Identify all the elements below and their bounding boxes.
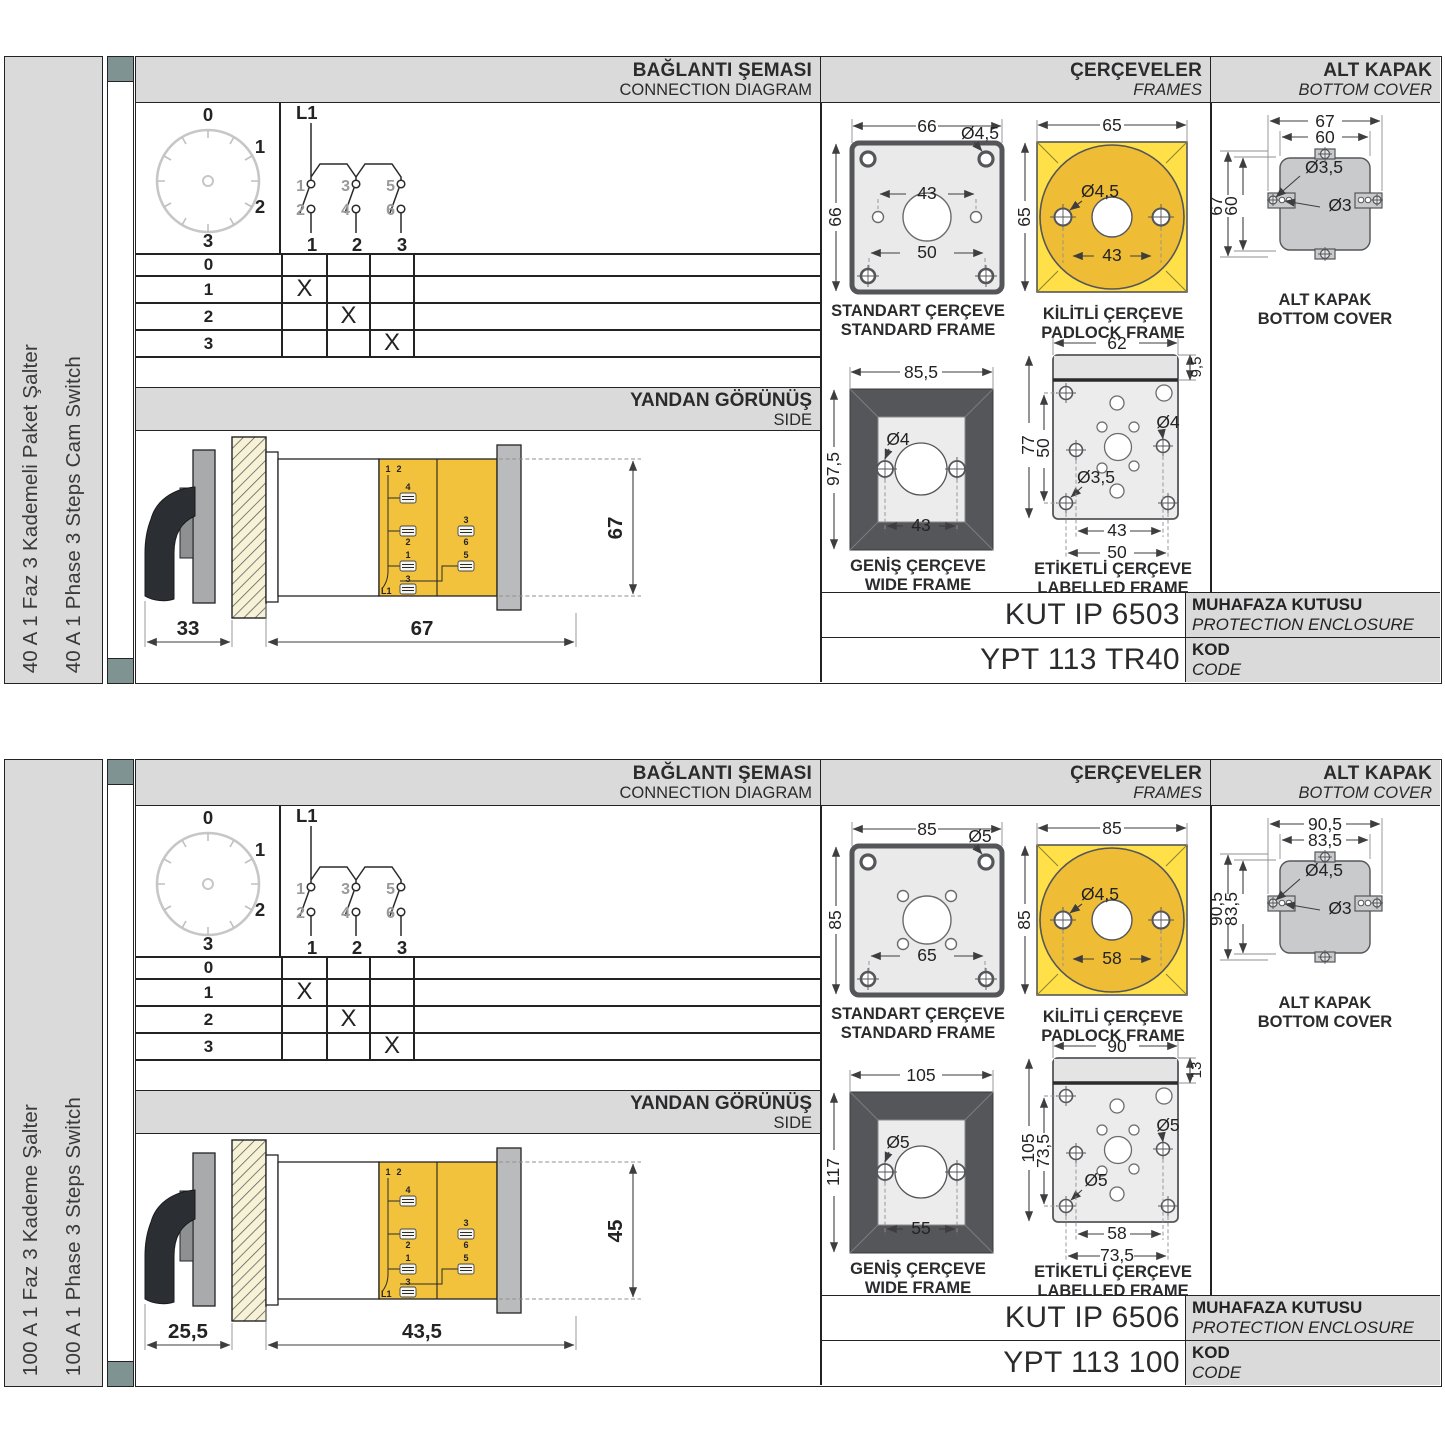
bottom-cover-header: ALT KAPAK BOTTOM COVER	[1210, 57, 1440, 103]
enclosure-label-tr: MUHAFAZA KUTUSU	[1192, 595, 1440, 615]
caption-tr: GENİŞ ÇERÇEVE	[820, 557, 1016, 576]
dim-body-height: 45	[604, 1220, 627, 1243]
binder-strip	[107, 56, 134, 684]
caption-tr: ETİKETLİ ÇERÇEVE	[1016, 1263, 1210, 1282]
cell	[369, 980, 413, 1005]
dim-frame-height: 117	[823, 1158, 843, 1186]
dim-hole-spacing: 58	[1102, 948, 1121, 968]
terminal-label: 2	[405, 1240, 410, 1250]
code-label-tr: KOD	[1192, 640, 1440, 660]
caption-tr: STANDART ÇERÇEVE	[820, 302, 1016, 321]
table-edge	[413, 277, 415, 302]
cell	[281, 1007, 326, 1032]
pole-1: 1	[307, 937, 317, 958]
terminal-label: 3	[463, 1218, 468, 1228]
table-row: 1 X	[136, 980, 820, 1007]
wide-frame-caption: GENİŞ ÇERÇEVE WIDE FRAME	[820, 557, 1016, 595]
dim-cover-h2: 83,5	[1221, 892, 1241, 926]
terminal-label: 1	[385, 464, 390, 474]
bottom-cover-header-tr: ALT KAPAK	[1211, 60, 1432, 81]
switch-body	[278, 459, 379, 596]
dim-frame-height: 97,5	[823, 452, 843, 486]
dial-diagram: 0 1 2 3	[136, 806, 281, 956]
cell	[281, 255, 326, 275]
cell	[369, 958, 413, 978]
enclosure-code-row: KUT IP 6503 MUHAFAZA KUTUSU PROTECTION E…	[820, 592, 1440, 637]
datasheet-40a: 40 A 1 Faz 3 Kademeli Paket Şalter 40 A …	[4, 56, 1442, 684]
dim-hole-big: Ø5	[1156, 1115, 1179, 1135]
contact-4: 4	[341, 905, 350, 922]
pole-2: 2	[352, 937, 362, 958]
product-title-en: 100 A 1 Phase 3 Steps Switch	[62, 1097, 86, 1376]
cell	[326, 1034, 369, 1059]
contact-4: 4	[341, 202, 350, 219]
frames-header-en: FRAMES	[821, 784, 1202, 803]
product-code-row: YPT 113 TR40 KOD CODE	[820, 637, 1440, 682]
cell: X	[326, 304, 369, 329]
labelled-frame-drawing: 62 9,5 77 50 Ø4 Ø3,5 43 50	[1016, 335, 1221, 570]
enclosure-label-en: PROTECTION ENCLOSURE	[1192, 615, 1440, 634]
table-row: 0	[136, 958, 820, 980]
dim-front-depth: 25,5	[168, 1320, 208, 1343]
mounting-plate	[193, 1153, 215, 1306]
padlock-frame-drawing: 65 Ø4,5 43 65	[1020, 105, 1212, 300]
cell	[369, 277, 413, 302]
flange	[266, 452, 278, 602]
dim-hole-spacing: 43	[917, 183, 936, 203]
contact-5: 5	[386, 178, 395, 195]
cell: X	[369, 1034, 413, 1059]
terminal-label: 4	[405, 1185, 410, 1195]
frames-header-en: FRAMES	[821, 81, 1202, 100]
dim-inner-height: 50	[1033, 438, 1053, 458]
terminal-label: 2	[405, 537, 410, 547]
connection-diagram-header: BAĞLANTI ŞEMASI CONNECTION DIAGRAM	[136, 760, 820, 806]
dim-hole-diameter: Ø4,5	[961, 123, 999, 143]
dim-inner-height: 73,5	[1033, 1134, 1053, 1168]
dim-frame-height: 65	[1014, 207, 1034, 226]
dial-pos-3: 3	[203, 230, 213, 251]
side-view-header: YANDAN GÖRÜNÜŞ SIDE	[136, 387, 820, 431]
caption-tr: KİLİTLİ ÇERÇEVE	[1016, 1008, 1210, 1027]
terminal-block	[379, 459, 497, 596]
product-code: YPT 113 100	[820, 1341, 1185, 1385]
product-title-tr: 40 A 1 Faz 3 Kademeli Paket Şalter	[19, 344, 43, 673]
terminal-label: 5	[463, 550, 468, 560]
standard-frame-drawing: 85 Ø5 65 85	[828, 808, 1020, 1008]
table-row: 3 X	[136, 1034, 820, 1061]
enclosure-code: KUT IP 6503	[820, 593, 1185, 637]
dim-strip-height: 13	[1188, 1062, 1205, 1079]
terminal-label: 2	[396, 1167, 401, 1177]
connection-header-tr: BAĞLANTI ŞEMASI	[136, 763, 812, 784]
binder-tab-bottom	[108, 658, 133, 683]
contact-2: 2	[296, 905, 305, 922]
circuit-diagram: L1 1 2 3 4 5 6 1 2 3	[281, 103, 820, 253]
table-row: 0	[136, 255, 820, 277]
frames-header: ÇERÇEVELER FRAMES	[820, 57, 1210, 103]
dim-frame-width: 85,5	[904, 362, 938, 382]
mounting-plate	[193, 450, 215, 603]
labelled-frame-drawing: 90 13 105 73,5 Ø5 Ø5 58 73,5	[1016, 1038, 1221, 1273]
dial-pos-0: 0	[203, 104, 213, 125]
cell	[369, 255, 413, 275]
dim-hole-small: Ø3,5	[1077, 467, 1115, 487]
cell	[281, 1034, 326, 1059]
dim-hole-small: Ø5	[1084, 1170, 1107, 1190]
row-label: 0	[136, 255, 281, 275]
terminal-label: 3	[405, 574, 410, 584]
dim-frame-width: 66	[917, 116, 936, 136]
terminal-label: 5	[463, 1253, 468, 1263]
terminal-label: 2	[396, 464, 401, 474]
pole-2: 2	[352, 234, 362, 255]
terminal-label: 3	[463, 515, 468, 525]
connection-header-en: CONNECTION DIAGRAM	[136, 784, 812, 803]
terminal-label: 1	[405, 1253, 410, 1263]
product-title-sidebar: 40 A 1 Faz 3 Kademeli Paket Şalter 40 A …	[4, 56, 103, 684]
dim-frame-height: 85	[825, 910, 845, 929]
product-title-sidebar: 100 A 1 Faz 3 Kademe Şalter 100 A 1 Phas…	[4, 759, 103, 1387]
dial-pos-1: 1	[255, 136, 265, 157]
cell	[326, 958, 369, 978]
row-label: 0	[136, 958, 281, 978]
dim-bottom-spacing-1: 58	[1107, 1223, 1126, 1243]
dim-hole-diameter: Ø5	[886, 1132, 909, 1152]
side-view-header-tr: YANDAN GÖRÜNÜŞ	[136, 1093, 812, 1114]
caption-en: BOTTOM COVER	[1210, 310, 1440, 329]
table-row: 3 X	[136, 331, 820, 358]
dial-pos-1: 1	[255, 839, 265, 860]
side-view-header: YANDAN GÖRÜNÜŞ SIDE	[136, 1090, 820, 1134]
circuit-diagram: L1 1 2 3 4 5 6 1 2 3	[281, 806, 820, 956]
dim-cover-hole2: Ø3	[1328, 195, 1351, 215]
contact-1: 1	[296, 178, 305, 195]
table-edge	[413, 980, 415, 1005]
contact-1: 1	[296, 881, 305, 898]
dial-pos-0: 0	[203, 807, 213, 828]
table-row: 1 X	[136, 277, 820, 304]
code-label-en: CODE	[1192, 1363, 1440, 1382]
cell	[369, 304, 413, 329]
bottom-cover-header-tr: ALT KAPAK	[1211, 763, 1432, 784]
dial-panel: 0 1 2 3	[136, 806, 281, 956]
dim-frame-width: 62	[1107, 333, 1126, 353]
product-title-tr: 100 A 1 Faz 3 Kademe Şalter	[19, 1104, 43, 1376]
dim-bottom-spacing-2: 73,5	[1100, 1245, 1134, 1265]
contact-5: 5	[386, 881, 395, 898]
row-label: 1	[136, 980, 281, 1005]
switch-body	[278, 1162, 379, 1299]
caption-en: STANDARD FRAME	[820, 321, 1016, 340]
caption-tr: KİLİTLİ ÇERÇEVE	[1016, 305, 1210, 324]
frames-header-tr: ÇERÇEVELER	[821, 60, 1202, 81]
panel-hatch	[232, 437, 266, 618]
frames-header: ÇERÇEVELER FRAMES	[820, 760, 1210, 806]
contact-3: 3	[341, 178, 350, 195]
product-title-en: 40 A 1 Phase 3 Steps Cam Switch	[62, 356, 86, 673]
standard-frame-caption: STANDART ÇERÇEVE STANDARD FRAME	[820, 302, 1016, 340]
row-label: 2	[136, 304, 281, 329]
binder-tab-top	[108, 57, 133, 82]
row-label: 2	[136, 1007, 281, 1032]
datasheet-100a: 100 A 1 Faz 3 Kademe Şalter 100 A 1 Phas…	[4, 759, 1442, 1387]
caption-tr: GENİŞ ÇERÇEVE	[820, 1260, 1016, 1279]
cell	[281, 304, 326, 329]
dim-cover-w2: 60	[1315, 127, 1335, 147]
terminal-label: 6	[463, 537, 468, 547]
dim-hole-diameter: Ø5	[968, 826, 991, 846]
cell	[326, 255, 369, 275]
dim-strip-height: 9,5	[1188, 357, 1205, 378]
dim-hole-spacing: 43	[1102, 245, 1121, 265]
terminal-label: L1	[381, 586, 392, 596]
terminal-block	[379, 1162, 497, 1299]
cell: X	[326, 1007, 369, 1032]
sheet-body: BAĞLANTI ŞEMASI CONNECTION DIAGRAM ÇERÇE…	[135, 56, 1442, 684]
enclosure-label-en: PROTECTION ENCLOSURE	[1192, 1318, 1440, 1337]
side-view-header-en: SIDE	[136, 1114, 812, 1133]
dim-hole-spacing: 55	[911, 1218, 930, 1238]
cell	[326, 980, 369, 1005]
row-label: 3	[136, 331, 281, 356]
dial-panel: 0 1 2 3	[136, 103, 281, 253]
dim-frame-height: 85	[1014, 910, 1034, 929]
side-view-drawing: 1 2 4 2 3 6 1 3 5 L1 25,5 43,5 45	[136, 1134, 820, 1385]
row-label: 3	[136, 1034, 281, 1059]
product-code: YPT 113 TR40	[820, 638, 1185, 682]
position-table: 0 1 X 2 X 3	[136, 956, 820, 1049]
table-edge	[413, 304, 415, 329]
dim-cover-hole1: Ø3,5	[1305, 157, 1343, 177]
code-label: KOD CODE	[1185, 638, 1440, 682]
dim-body-depth: 67	[411, 617, 434, 640]
cell: X	[369, 331, 413, 356]
dial-pos-2: 2	[255, 899, 265, 920]
caption-tr: ALT KAPAK	[1210, 994, 1440, 1013]
bottom-cover-caption: ALT KAPAK BOTTOM COVER	[1210, 994, 1440, 1032]
table-row: 2 X	[136, 1007, 820, 1034]
frames-header-tr: ÇERÇEVELER	[821, 763, 1202, 784]
dim-hole-diameter: Ø4,5	[1081, 181, 1119, 201]
binder-tab-top	[108, 760, 133, 785]
code-label: KOD CODE	[1185, 1341, 1440, 1385]
pole-3: 3	[397, 937, 407, 958]
enclosure-label: MUHAFAZA KUTUSU PROTECTION ENCLOSURE	[1185, 1296, 1440, 1340]
contact-3: 3	[341, 881, 350, 898]
cell	[326, 277, 369, 302]
side-view-header-en: SIDE	[136, 411, 812, 430]
terminal-label: 4	[405, 482, 410, 492]
bottom-cover-caption: ALT KAPAK BOTTOM COVER	[1210, 291, 1440, 329]
phase-label: L1	[296, 805, 318, 826]
dim-frame-height: 66	[825, 207, 845, 226]
connection-header-tr: BAĞLANTI ŞEMASI	[136, 60, 812, 81]
dim-cover-h2: 60	[1221, 196, 1241, 216]
caption-tr: ETİKETLİ ÇERÇEVE	[1016, 560, 1210, 579]
wide-frame-caption: GENİŞ ÇERÇEVE WIDE FRAME	[820, 1260, 1016, 1298]
cell: X	[281, 277, 326, 302]
table-edge	[413, 1007, 415, 1032]
dim-body-depth: 43,5	[402, 1320, 442, 1343]
dim-frame-width: 85	[917, 819, 936, 839]
cell	[326, 331, 369, 356]
dim-frame-width: 65	[1102, 115, 1121, 135]
dim-bottom-spacing-1: 43	[1107, 520, 1126, 540]
standard-frame-drawing: 66 Ø4,5 43 50 66	[828, 105, 1020, 305]
table-edge	[413, 255, 415, 275]
dim-front-depth: 33	[177, 617, 200, 640]
caption-tr: STANDART ÇERÇEVE	[820, 1005, 1016, 1024]
product-code-row: YPT 113 100 KOD CODE	[820, 1340, 1440, 1385]
terminal-label: L1	[381, 1289, 392, 1299]
dial-diagram: 0 1 2 3	[136, 103, 281, 253]
row-label: 1	[136, 277, 281, 302]
terminal-label: 6	[463, 1240, 468, 1250]
bottom-cover-header-en: BOTTOM COVER	[1211, 784, 1432, 803]
table-edge	[413, 958, 415, 978]
enclosure-code-row: KUT IP 6506 MUHAFAZA KUTUSU PROTECTION E…	[820, 1295, 1440, 1340]
standard-frame-caption: STANDART ÇERÇEVE STANDARD FRAME	[820, 1005, 1016, 1043]
binder-strip	[107, 759, 134, 1387]
dim-cover-hole1: Ø4,5	[1305, 860, 1343, 880]
pole-1: 1	[307, 234, 317, 255]
contact-2: 2	[296, 202, 305, 219]
dim-hole-diameter: Ø4	[886, 429, 910, 449]
cell	[281, 958, 326, 978]
phase-label: L1	[296, 102, 318, 123]
table-edge	[413, 1034, 415, 1059]
dim-frame-width: 105	[906, 1065, 935, 1085]
table-row: 2 X	[136, 304, 820, 331]
connection-header-en: CONNECTION DIAGRAM	[136, 81, 812, 100]
contact-6: 6	[386, 905, 395, 922]
dim-frame-width: 85	[1102, 818, 1121, 838]
dim-lower-spacing: 50	[917, 242, 937, 262]
bottom-cover-drawing: 67 60 67 60 Ø3,5 Ø3	[1212, 107, 1441, 287]
dim-cover-hole2: Ø3	[1328, 898, 1351, 918]
code-label-en: CODE	[1192, 660, 1440, 679]
position-table: 0 1 X 2 X 3	[136, 253, 820, 346]
dim-bottom-spacing-2: 50	[1107, 542, 1127, 562]
dim-cover-w2: 83,5	[1308, 830, 1342, 850]
end-plate	[497, 1148, 521, 1313]
cell	[369, 1007, 413, 1032]
caption-en: STANDARD FRAME	[820, 1024, 1016, 1043]
bottom-cover-header: ALT KAPAK BOTTOM COVER	[1210, 760, 1440, 806]
enclosure-label: MUHAFAZA KUTUSU PROTECTION ENCLOSURE	[1185, 593, 1440, 637]
pole-3: 3	[397, 234, 407, 255]
contact-6: 6	[386, 202, 395, 219]
caption-tr: ALT KAPAK	[1210, 291, 1440, 310]
flange	[266, 1155, 278, 1305]
panel-hatch	[232, 1140, 266, 1321]
enclosure-code: KUT IP 6506	[820, 1296, 1185, 1340]
bottom-cover-drawing: 90,5 83,5 90,5 83,5 Ø4,5 Ø3	[1212, 810, 1441, 990]
dim-body-height: 67	[604, 517, 627, 540]
dial-pos-2: 2	[255, 196, 265, 217]
caption-en: BOTTOM COVER	[1210, 1013, 1440, 1032]
padlock-frame-drawing: 85 Ø4,5 58 85	[1020, 808, 1212, 1003]
dim-hole-diameter: Ø4,5	[1081, 884, 1119, 904]
cell	[281, 331, 326, 356]
dim-hole-spacing: 43	[911, 515, 930, 535]
dim-frame-width: 90	[1107, 1036, 1127, 1056]
sheet-body: BAĞLANTI ŞEMASI CONNECTION DIAGRAM ÇERÇE…	[135, 759, 1442, 1387]
dial-pos-3: 3	[203, 933, 213, 954]
side-view-header-tr: YANDAN GÖRÜNÜŞ	[136, 390, 812, 411]
dim-lower-spacing: 65	[917, 945, 936, 965]
connection-diagram-header: BAĞLANTI ŞEMASI CONNECTION DIAGRAM	[136, 57, 820, 103]
table-edge	[413, 331, 415, 356]
code-label-tr: KOD	[1192, 1343, 1440, 1363]
side-view-drawing: 1 2 4 2 3 6 1 3 5 L1 33 67 67	[136, 431, 820, 682]
bottom-cover-header-en: BOTTOM COVER	[1211, 81, 1432, 100]
cell: X	[281, 980, 326, 1005]
end-plate	[497, 445, 521, 610]
binder-tab-bottom	[108, 1361, 133, 1386]
wide-frame-drawing: 105 Ø5 55 117	[828, 1052, 1020, 1262]
wide-frame-drawing: 85,5 Ø4 43 97,5	[828, 349, 1020, 559]
enclosure-label-tr: MUHAFAZA KUTUSU	[1192, 1298, 1440, 1318]
dim-hole-big: Ø4	[1156, 412, 1180, 432]
terminal-label: 1	[405, 550, 410, 560]
terminal-label: 3	[405, 1277, 410, 1287]
terminal-label: 1	[385, 1167, 390, 1177]
